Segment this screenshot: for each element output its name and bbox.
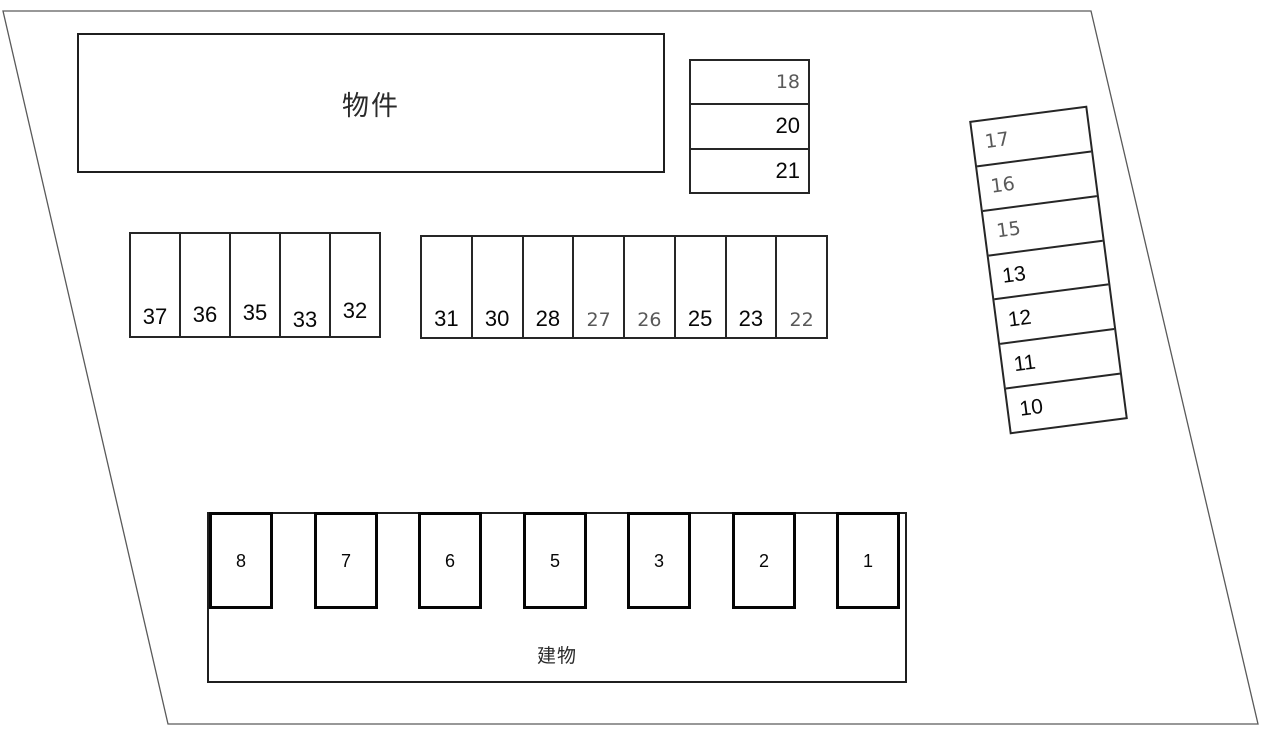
spot-number: 35 — [243, 302, 267, 324]
spot-number: 17 — [984, 130, 1010, 152]
spot-number: 32 — [343, 300, 367, 322]
parking-spot-22: 22 — [775, 237, 826, 337]
parking-spot-25: 25 — [674, 237, 725, 337]
parking-spot-23: 23 — [725, 237, 776, 337]
spot-number: 28 — [536, 308, 560, 330]
spot-number: 37 — [143, 306, 167, 328]
spot-number: 11 — [1013, 352, 1037, 376]
spot-number: 15 — [995, 219, 1021, 241]
spot-number: 21 — [776, 160, 800, 182]
parking-spot-31: 31 — [422, 237, 471, 337]
parking-spot-5: 5 — [523, 512, 587, 609]
parking-spot-27: 27 — [572, 237, 623, 337]
spot-number: 23 — [739, 308, 763, 330]
property-label: 物件 — [342, 84, 400, 123]
spot-number: 8 — [236, 552, 246, 570]
spot-number: 10 — [1018, 396, 1044, 420]
parking-spot-32: 32 — [329, 234, 379, 336]
spot-number: 36 — [193, 304, 217, 326]
spot-number: 20 — [776, 115, 800, 137]
parking-spot-37: 37 — [131, 234, 179, 336]
parking-spot-26: 26 — [623, 237, 674, 337]
parking-row-middle: 31 30 28 27 26 25 23 22 — [420, 235, 828, 339]
parking-spot-36: 36 — [179, 234, 229, 336]
property-box: 物件 — [77, 33, 665, 173]
parking-spot-28: 28 — [522, 237, 573, 337]
parking-row-left: 37 36 35 33 32 — [129, 232, 381, 338]
spot-number: 22 — [790, 311, 814, 330]
spot-number: 5 — [550, 552, 560, 570]
spot-number: 25 — [688, 308, 712, 330]
parking-spot-20: 20 — [691, 103, 808, 147]
parking-spot-33: 33 — [279, 234, 329, 336]
parking-spot-8: 8 — [209, 512, 273, 609]
parking-spot-6: 6 — [418, 512, 482, 609]
parking-spot-3: 3 — [627, 512, 691, 609]
spot-number: 13 — [1001, 263, 1027, 287]
spot-number: 12 — [1007, 307, 1033, 331]
spot-number: 18 — [776, 73, 800, 92]
parking-layout-diagram: 物件 18 20 21 37 36 35 33 32 31 — [0, 0, 1268, 730]
parking-spot-21: 21 — [691, 148, 808, 192]
spot-number: 27 — [587, 311, 611, 330]
parking-spot-30: 30 — [471, 237, 522, 337]
spot-number: 31 — [434, 308, 458, 330]
parking-spot-35: 35 — [229, 234, 279, 336]
spot-number: 3 — [654, 552, 664, 570]
spot-number: 16 — [990, 174, 1016, 196]
spot-number: 7 — [341, 552, 351, 570]
spot-number: 6 — [445, 552, 455, 570]
spot-number: 33 — [293, 309, 317, 331]
spot-number: 30 — [485, 308, 509, 330]
spot-number: 1 — [863, 552, 873, 570]
spot-number: 26 — [637, 311, 661, 330]
parking-stack-upper: 18 20 21 — [689, 59, 810, 194]
parking-spot-7: 7 — [314, 512, 378, 609]
building-label: 建物 — [209, 641, 905, 668]
spot-number: 2 — [759, 552, 769, 570]
parking-spot-18: 18 — [691, 61, 808, 103]
parking-spot-1: 1 — [836, 512, 900, 609]
parking-spot-2: 2 — [732, 512, 796, 609]
